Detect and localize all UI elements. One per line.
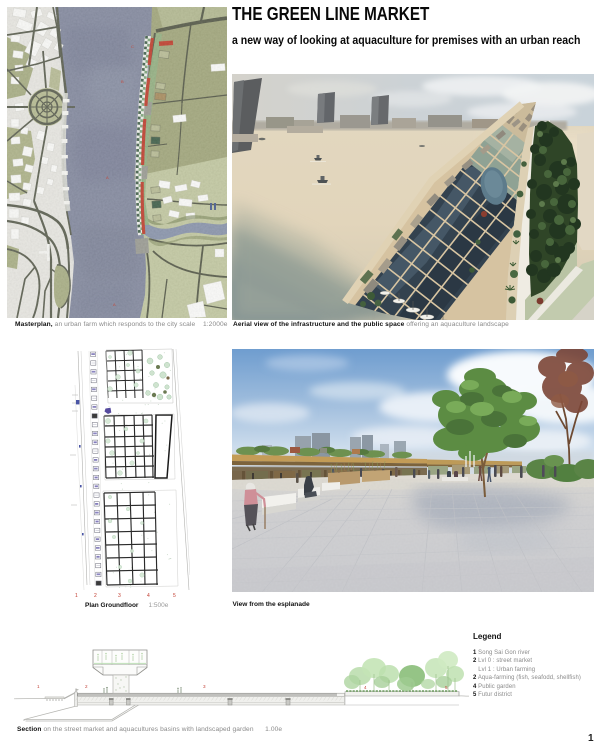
svg-text:2: 2	[85, 684, 88, 689]
svg-text:5: 5	[445, 685, 448, 690]
svg-text:4: 4	[147, 593, 150, 599]
svg-text:1: 1	[37, 684, 40, 689]
svg-text:2: 2	[94, 593, 97, 599]
svg-text:5: 5	[173, 593, 176, 599]
svg-text:3: 3	[203, 684, 206, 689]
svg-text:3: 3	[118, 593, 121, 599]
svg-text:1: 1	[75, 593, 78, 599]
svg-text:4: 4	[364, 685, 367, 690]
